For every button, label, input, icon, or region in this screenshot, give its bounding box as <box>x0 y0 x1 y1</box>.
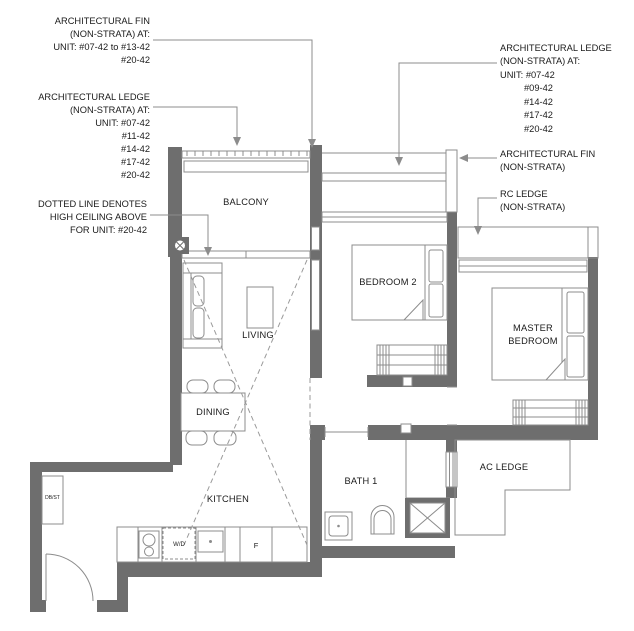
annotation-line: ARCHITECTURAL LEDGE <box>500 43 612 53</box>
label-balcony: BALCONY <box>223 197 269 207</box>
dining-chair-3 <box>186 431 207 445</box>
annotation-line: #14-42 <box>121 144 150 154</box>
label-ac-ledge: AC LEDGE <box>480 462 529 472</box>
annotation-line: (NON-STRATA) <box>500 202 565 212</box>
annotation-line: ARCHITECTURAL FIN <box>500 149 595 159</box>
master-door-jambs <box>447 387 457 425</box>
kitchen-sink-drain <box>209 540 212 543</box>
arrowhead-ledge-right <box>395 157 403 166</box>
annotations: ARCHITECTURAL FIN (NON-STRATA) AT: UNIT:… <box>38 16 612 235</box>
wall-south-corridor-a <box>310 425 325 440</box>
wall-entry-step <box>117 562 128 612</box>
annotation-line: (NON-STRATA) AT: <box>500 56 580 66</box>
door-tab-bedroom2 <box>403 377 412 386</box>
annotation-line: FOR UNIT: #20-42 <box>70 225 147 235</box>
annotation-line: #09-42 <box>524 83 553 93</box>
bath-sink-drain <box>337 525 340 528</box>
annotation-ledge-right: ARCHITECTURAL LEDGE (NON-STRATA) AT: UNI… <box>500 43 612 134</box>
annotation-line: ARCHITECTURAL FIN <box>55 16 150 26</box>
top-ledge-band <box>322 173 446 181</box>
leader-fin-left <box>153 40 312 139</box>
leader-rc-ledge <box>478 198 497 226</box>
label-master-1: MASTER <box>513 323 553 333</box>
annotation-line: #17-42 <box>121 157 150 167</box>
arrowhead-ledge-left <box>233 137 241 146</box>
hob-burner-2 <box>145 547 154 556</box>
balcony-ledge-band <box>184 161 308 172</box>
annotation-line: UNIT: #07-42 <box>95 118 150 128</box>
label-master-2: BEDROOM <box>508 336 557 346</box>
master-pillow-1 <box>567 292 584 333</box>
wall-bottom-left-b <box>97 600 117 612</box>
annotation-line: ARCHITECTURAL LEDGE <box>38 92 150 102</box>
leader-ledge-left <box>153 107 237 137</box>
room-labels: BALCONY LIVING DINING KITCHEN BEDROOM 2 … <box>45 197 558 550</box>
door-tab-bath <box>401 424 411 433</box>
wall-bath-south <box>310 546 455 558</box>
annotation-line: #17-42 <box>524 110 553 120</box>
annotation-dotted-line: DOTTED LINE DENOTES HIGH CEILING ABOVE F… <box>38 199 147 235</box>
annotation-line: UNIT: #07-42 <box>500 70 555 80</box>
label-dining: DINING <box>196 407 230 417</box>
master-pillow-2 <box>567 336 584 377</box>
annotation-line: #20-42 <box>524 124 553 134</box>
annotation-fin-right: ARCHITECTURAL FIN (NON-STRATA) <box>500 149 595 172</box>
entry-door-swing-arc <box>46 554 93 601</box>
annotation-line: HIGH CEILING ABOVE <box>50 212 147 222</box>
label-bath1: BATH 1 <box>344 476 377 486</box>
annotation-leaders <box>150 40 497 256</box>
label-kitchen: KITCHEN <box>207 494 249 504</box>
bedroom2-pillow-2 <box>429 284 443 317</box>
annotation-line: #14-42 <box>524 97 553 107</box>
bath-ac-window-lines <box>450 452 454 487</box>
annotation-fin-left: ARCHITECTURAL FIN (NON-STRATA) AT: UNIT:… <box>53 16 150 65</box>
rc-ledge-corner <box>588 227 598 258</box>
wall-bedroom2-east <box>447 212 457 377</box>
annotation-line: (NON-STRATA) <box>500 162 565 172</box>
dining-chair-2 <box>214 380 235 393</box>
dining-chair-1 <box>187 380 208 393</box>
annotation-line: #20-42 <box>121 170 150 180</box>
wall-west-lower <box>30 462 42 612</box>
shower-divider <box>406 440 450 498</box>
bedroom2-pillow-1 <box>429 250 443 282</box>
wall-kitchen-south <box>117 562 322 577</box>
annotation-line: DOTTED LINE DENOTES <box>38 199 147 209</box>
annotation-ledge-left: ARCHITECTURAL LEDGE (NON-STRATA) AT: UNI… <box>38 92 150 180</box>
annotation-line: #11-42 <box>122 131 150 141</box>
balcony-railing-ticks <box>187 151 307 156</box>
annotation-line: UNIT: #07-42 to #13-42 <box>53 42 150 52</box>
wall-master-east <box>588 257 598 428</box>
wall-living-west <box>170 257 182 465</box>
label-fridge: F <box>254 541 259 550</box>
bedroom2-wardrobe <box>377 345 447 375</box>
annotation-line: #20-42 <box>121 55 150 65</box>
hob-burner-1 <box>143 534 155 546</box>
label-living: LIVING <box>242 330 274 340</box>
master-wardrobe <box>513 400 588 425</box>
architectural-fin-outline <box>446 150 457 212</box>
sofa-cushion-2 <box>193 308 204 338</box>
label-db-st: DB/ST <box>45 495 60 501</box>
annotation-line: RC LEDGE <box>500 189 548 199</box>
arrowhead-rc-ledge <box>474 226 482 235</box>
bath-door-line <box>325 427 368 437</box>
ac-ledge-outline <box>455 440 570 535</box>
leader-ledge-right <box>399 63 497 157</box>
arrowhead-fin-right <box>459 154 468 162</box>
annotation-line: (NON-STRATA) AT: <box>70 29 150 39</box>
annotation-line: (NON-STRATA) AT: <box>70 105 150 115</box>
annotation-rc-ledge: RC LEDGE (NON-STRATA) <box>500 189 565 212</box>
floor-plan: ARCHITECTURAL FIN (NON-STRATA) AT: UNIT:… <box>0 0 634 631</box>
label-bedroom2: BEDROOM 2 <box>359 277 417 287</box>
floor-plan-drawing: ARCHITECTURAL FIN (NON-STRATA) AT: UNIT:… <box>0 0 634 631</box>
living-wall-window <box>312 260 320 330</box>
coffee-table <box>247 287 273 328</box>
wall-entry-north <box>30 462 173 472</box>
label-washer-dryer: W/D <box>173 542 185 548</box>
balcony-wall-window <box>312 227 320 250</box>
